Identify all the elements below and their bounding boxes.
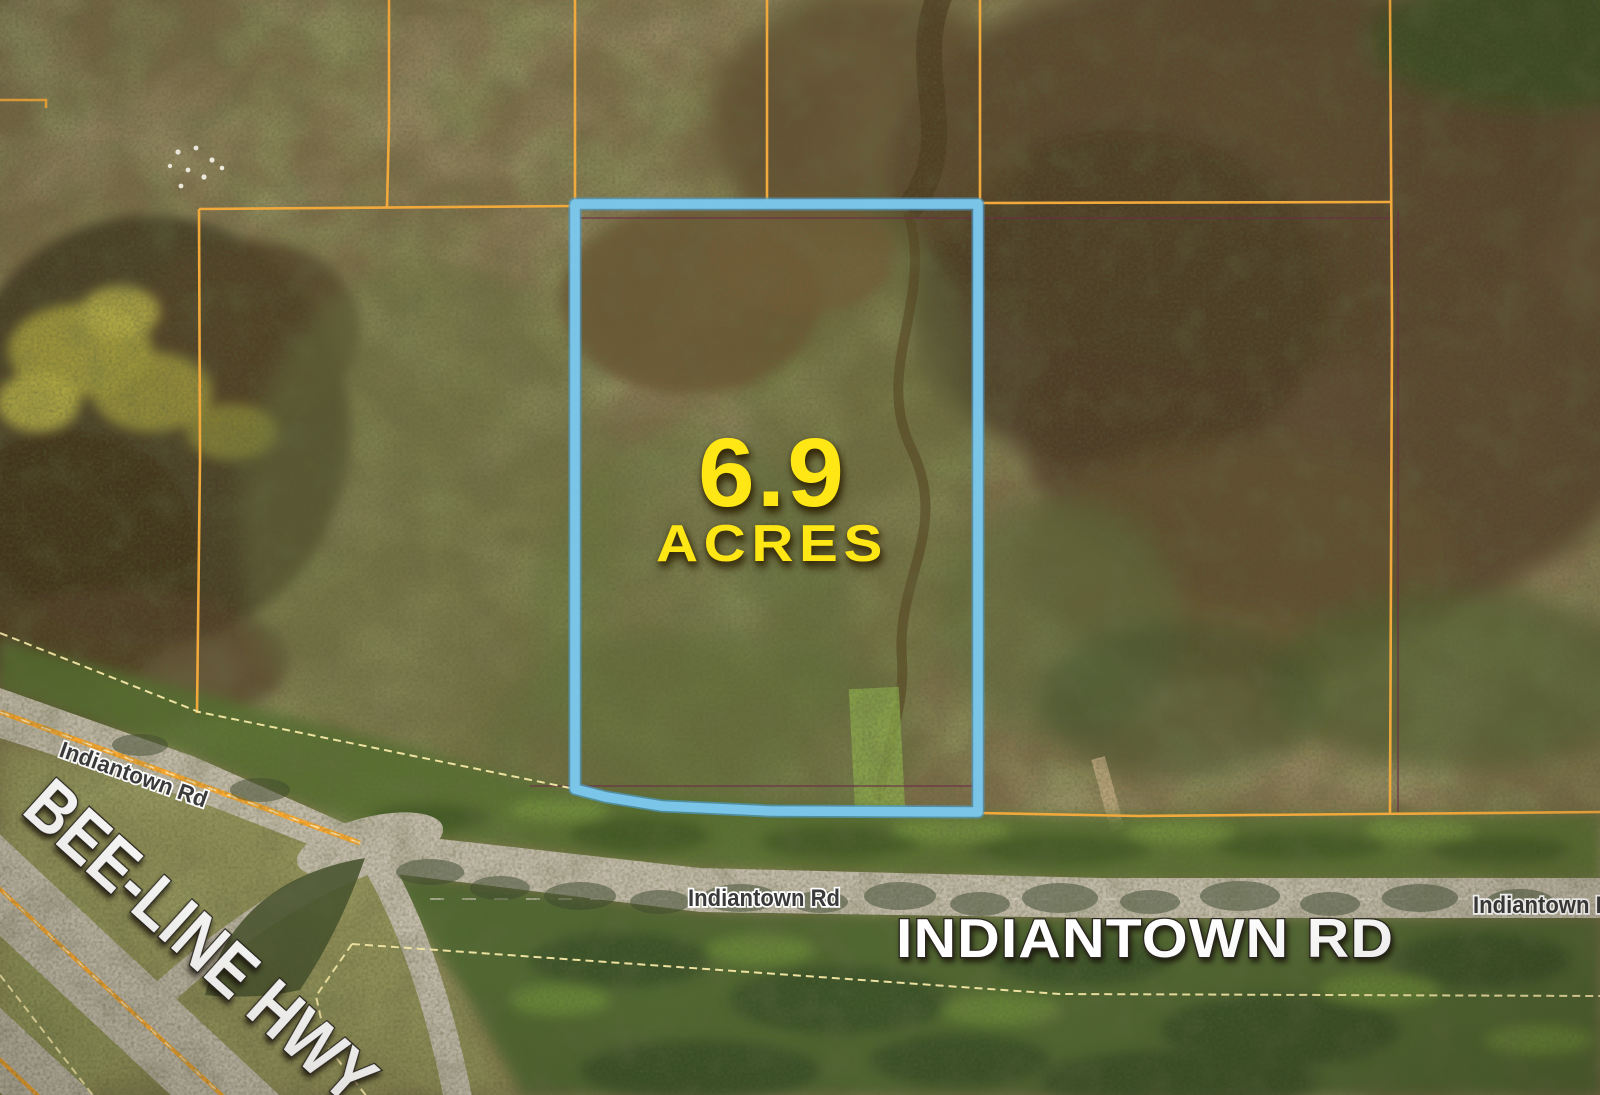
- aerial-photo: 6.9 ACRES BEE-LINE HWY INDIANTOWN RD Ind…: [0, 0, 1600, 1095]
- aerial-map: 6.9 ACRES BEE-LINE HWY INDIANTOWN RD Ind…: [0, 0, 1600, 1095]
- vignette: [0, 0, 1600, 1095]
